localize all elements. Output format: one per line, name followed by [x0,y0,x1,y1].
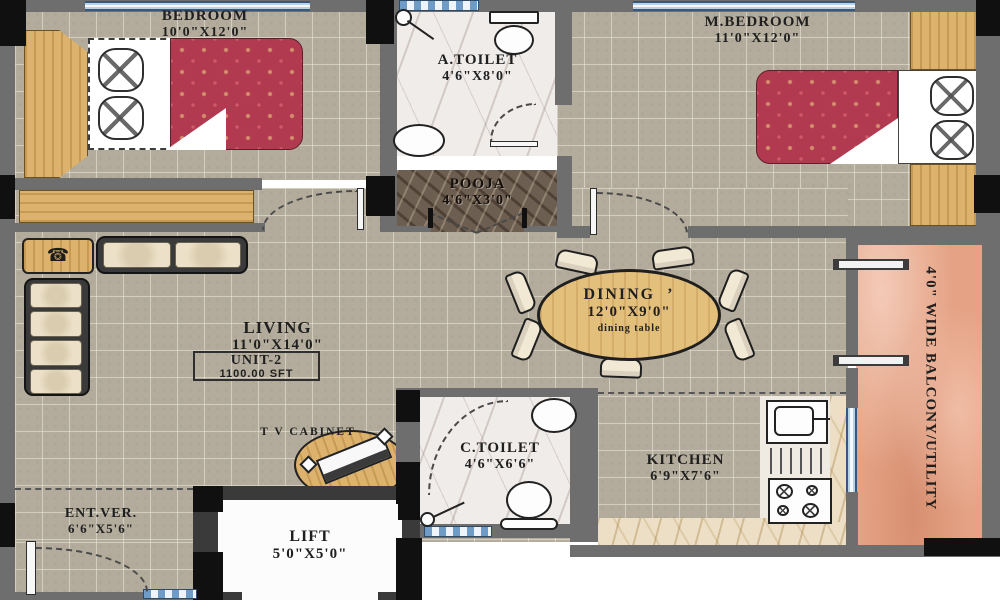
attached-toilet-label: A.TOILET 4'6"X8'0" [400,52,555,84]
room-name: C.TOILET [425,440,575,457]
wall-right-balcony [982,245,1000,557]
room-name: KITCHEN [608,452,763,469]
room-name: DINING [584,286,656,303]
toilet-window [399,0,479,11]
wall-dining-balcony-c [846,368,858,408]
bed2-pillow-icon [930,120,974,160]
bedroom-label: BEDROOM 10'0"X12'0" [100,8,310,40]
attached-toilet-door-leaf [490,141,538,147]
bed2-pillow-icon [930,76,974,116]
balcony-railing [834,355,908,366]
kitchen-drainboard [770,448,824,474]
kitchen-sink-basin [774,406,814,436]
corner-block [396,390,420,422]
stove-burner [776,484,793,499]
dining-note: dining table [547,323,711,334]
washbasin-icon [393,124,445,157]
room-dims: 4'6"X6'6" [425,457,575,473]
common-toilet-label: C.TOILET 4'6"X6'6" [425,440,575,472]
corner-block [0,0,26,46]
toilet-bowl-icon [494,25,534,55]
room-dims: 12'0"X9'0" [547,304,711,321]
tv-cabinet-label: T V CABINET [238,426,378,439]
toilet-tank [489,11,539,24]
toilet-pooja-gap [397,156,557,170]
wall-bedroom-bottom [15,178,262,190]
kitchen-sink-tap [814,418,830,420]
room-name: M.BEDROOM [650,14,865,31]
room-name: A.TOILET [400,52,555,69]
room-name: LIVING [170,318,385,337]
unit-area: 1100.00 SFT [195,368,318,381]
toilet-tank [500,518,558,530]
bed1-pillow-icon [98,96,144,140]
room-dims: 6'9"X7'6" [608,469,763,485]
kitchen-counter-right [830,396,846,522]
wall-kitchen-balcony [846,492,858,545]
stove-burner [806,485,818,496]
entrance-window [143,589,197,599]
corner-block [974,175,1000,213]
room-dims: 10'0"X12'0" [100,25,310,41]
sofa-two-seater [96,236,248,274]
bedroom-door-leaf [357,188,364,230]
corner-block [366,0,394,44]
balcony-floor [856,245,983,545]
master-bedroom-window [633,1,855,11]
balcony-railing [834,259,908,270]
kitchen-window [846,408,857,492]
pooja-label: POOJA 4'6"X3'0" [400,176,555,208]
phone-icon: ☎ [36,240,80,270]
wall-pooja-bottom-right [524,226,557,232]
wall-dining-balcony-a [846,245,858,259]
pooja-door-post [522,208,527,228]
room-dims: 4'6"X3'0" [400,193,555,209]
bedroom-wardrobe [19,190,254,223]
sofa-four-seater [24,278,90,396]
corner-block [0,503,15,547]
corner-block [366,176,395,216]
verandah-boundary-line [15,488,193,490]
lift-door-opening [242,592,378,600]
bed1-headboard [24,30,88,178]
stove-icon [768,478,832,524]
stove-burner [777,505,789,516]
wall-dining-balcony-b [846,270,858,355]
room-name: BEDROOM [100,8,310,25]
corner-block [924,538,1000,556]
floor-plan: ☎ [0,0,1000,600]
wall-below-wardrobe [15,223,265,232]
balcony-label: 4'0" WIDE BALCONY/UTILITY [922,248,939,528]
master-wardrobe-top [910,10,978,70]
pooja-door-post [428,208,433,228]
living-label: LIVING 11'0"X14'0" [170,318,385,354]
corner-block [976,0,1000,36]
common-toilet-window [424,526,492,537]
unit-label: UNIT-2 [195,354,318,368]
dining-mark: ’ [667,286,674,303]
master-bedroom-label: M.BEDROOM 11'0"X12'0" [650,14,865,46]
bed1-pillow-icon [98,48,144,92]
master-bedroom-door-leaf [590,188,597,235]
room-dims: 6'6"X5'6" [35,522,167,537]
lift-corner-block [193,486,223,512]
washbasin-icon [531,398,577,433]
dining-label: DINING ’ 12'0"X9'0" dining table [547,286,711,334]
master-wardrobe-bottom [910,164,978,226]
lift-label: LIFT 5'0"X5'0" [218,528,402,563]
kitchen-boundary-line [598,392,846,394]
corner-block [0,175,15,219]
wall-toilet-mbedroom [555,10,572,105]
shower-icon [420,512,435,527]
room-name: ENT.VER. [35,506,167,522]
room-dims: 11'0"X12'0" [650,31,865,47]
kitchen-label: KITCHEN 6'9"X7'6" [608,452,763,484]
room-dims: 4'6"X8'0" [400,69,555,85]
unit-box: UNIT-2 1100.00 SFT [193,351,320,381]
room-dims: 5'0"X5'0" [218,546,402,563]
corner-block [396,462,420,504]
room-name: LIFT [218,528,402,546]
room-name: POOJA [400,176,555,193]
wall-mbedroom-bottom-stub [557,226,590,238]
wall-balcony-top [846,233,1000,245]
stove-burner [802,503,819,518]
wall-ctoilet-top [420,388,572,397]
wall-pooja-right [557,156,572,232]
bed1-blanket [170,38,303,150]
entrance-verandah-label: ENT.VER. 6'6"X5'6" [35,506,167,536]
toilet-bowl-icon [506,481,552,519]
entrance-door-leaf [26,541,36,595]
wall-pooja-bottom-left [397,226,431,232]
